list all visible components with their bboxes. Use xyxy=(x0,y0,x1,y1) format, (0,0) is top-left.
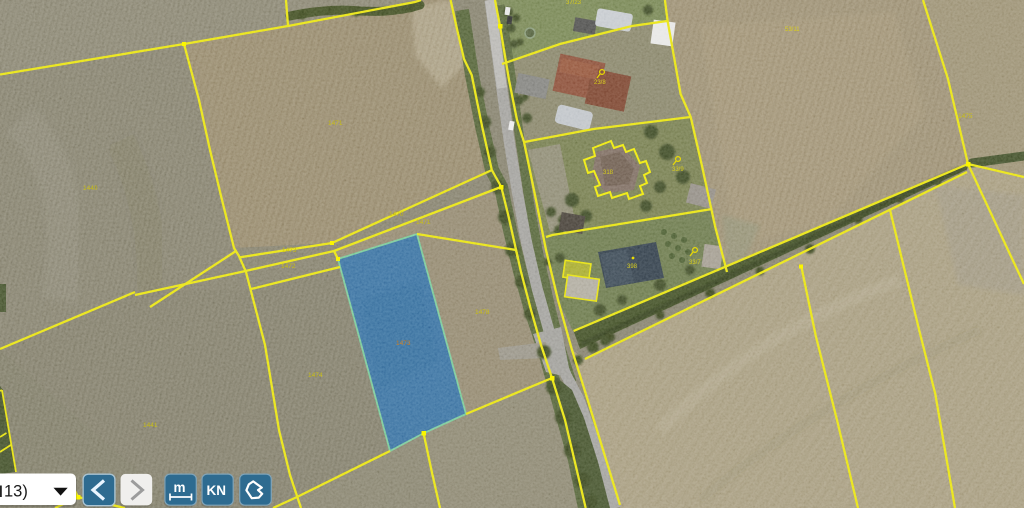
svg-text:13): 13) xyxy=(4,483,28,501)
svg-text:m: m xyxy=(174,480,186,495)
svg-text:KN: KN xyxy=(207,483,227,498)
